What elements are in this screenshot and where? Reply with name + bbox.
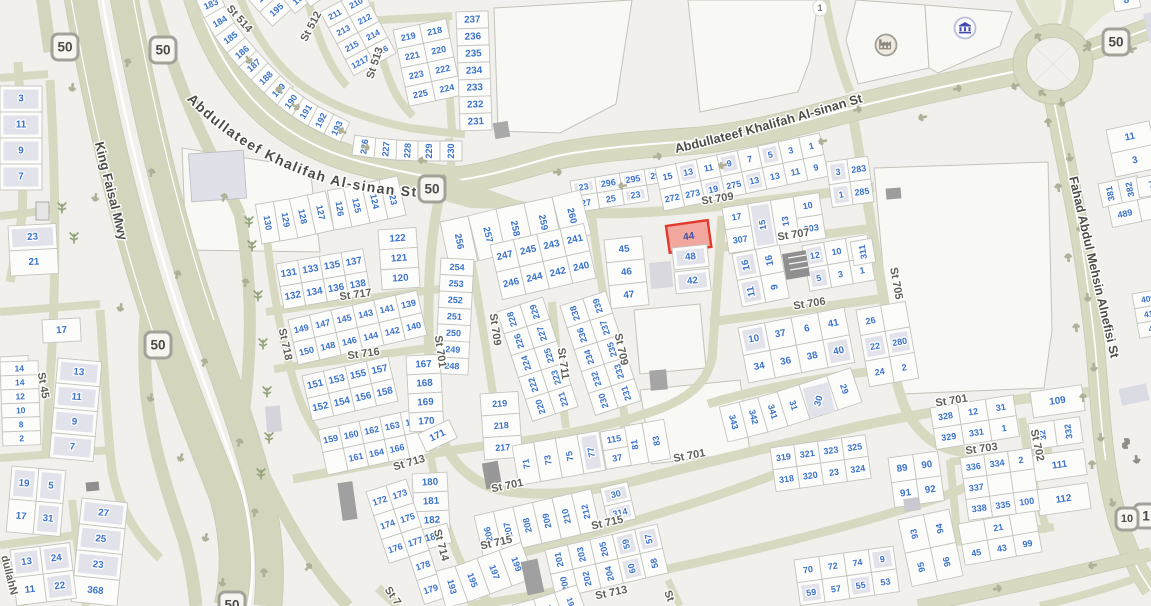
svg-text:83: 83 <box>651 435 663 447</box>
svg-text:23: 23 <box>828 467 839 478</box>
svg-text:22: 22 <box>869 340 881 352</box>
svg-text:25: 25 <box>95 533 108 545</box>
svg-text:15: 15 <box>662 171 674 183</box>
svg-text:182: 182 <box>424 515 441 527</box>
svg-text:321: 321 <box>799 448 815 460</box>
svg-text:13: 13 <box>682 166 694 178</box>
svg-text:233: 233 <box>466 82 483 94</box>
svg-text:338: 338 <box>971 502 987 514</box>
svg-text:11: 11 <box>71 391 83 403</box>
svg-text:92: 92 <box>924 484 937 496</box>
svg-text:26: 26 <box>865 315 877 327</box>
svg-text:112: 112 <box>1055 493 1073 506</box>
svg-text:318: 318 <box>778 473 794 485</box>
svg-text:50: 50 <box>57 40 72 55</box>
svg-text:59: 59 <box>806 587 817 598</box>
svg-text:77: 77 <box>586 447 598 459</box>
svg-text:11: 11 <box>790 166 801 178</box>
svg-text:43: 43 <box>996 542 1008 554</box>
svg-text:332: 332 <box>1062 423 1074 439</box>
svg-text:219: 219 <box>492 398 508 409</box>
svg-text:111: 111 <box>1051 459 1068 472</box>
svg-text:10: 10 <box>1121 513 1133 525</box>
svg-text:234: 234 <box>466 65 483 77</box>
svg-text:8: 8 <box>19 419 24 429</box>
svg-text:109: 109 <box>1049 395 1067 408</box>
svg-text:44: 44 <box>682 231 695 244</box>
svg-text:229: 229 <box>424 143 434 158</box>
svg-text:42: 42 <box>687 275 700 287</box>
svg-text:50: 50 <box>224 598 239 606</box>
svg-text:13: 13 <box>748 175 760 187</box>
svg-text:93: 93 <box>908 528 920 540</box>
svg-text:3: 3 <box>18 94 24 105</box>
svg-text:12: 12 <box>967 406 978 417</box>
svg-text:31: 31 <box>995 402 1006 413</box>
svg-text:50: 50 <box>424 182 439 197</box>
svg-text:250: 250 <box>446 328 462 339</box>
svg-text:13: 13 <box>73 366 85 378</box>
svg-text:23: 23 <box>27 231 39 243</box>
svg-text:368: 368 <box>87 585 105 598</box>
svg-text:53: 53 <box>880 576 891 587</box>
svg-text:48: 48 <box>685 251 698 263</box>
svg-text:251: 251 <box>447 311 463 322</box>
svg-text:409: 409 <box>1140 293 1151 305</box>
svg-text:320: 320 <box>802 470 818 482</box>
svg-text:252: 252 <box>448 295 464 306</box>
svg-text:170: 170 <box>418 416 435 428</box>
svg-text:249: 249 <box>445 344 461 355</box>
svg-text:122: 122 <box>389 233 407 245</box>
svg-text:181: 181 <box>423 496 440 508</box>
svg-text:17: 17 <box>731 211 742 222</box>
svg-text:2: 2 <box>19 433 24 443</box>
svg-text:11: 11 <box>24 584 36 596</box>
svg-text:411: 411 <box>1143 307 1151 319</box>
svg-text:235: 235 <box>465 48 482 60</box>
svg-text:167: 167 <box>415 359 432 371</box>
svg-text:227: 227 <box>380 141 391 157</box>
svg-text:13: 13 <box>21 556 34 568</box>
svg-text:325: 325 <box>847 441 863 453</box>
svg-text:232: 232 <box>467 99 484 111</box>
svg-text:180: 180 <box>422 477 439 489</box>
svg-text:254: 254 <box>449 262 465 273</box>
svg-text:27: 27 <box>98 507 111 519</box>
svg-text:75: 75 <box>564 450 576 462</box>
svg-text:15: 15 <box>757 219 768 230</box>
svg-text:324: 324 <box>850 463 866 475</box>
svg-text:74: 74 <box>852 557 863 568</box>
svg-text:50: 50 <box>150 338 165 353</box>
svg-text:50: 50 <box>155 43 170 58</box>
svg-text:319: 319 <box>775 451 791 463</box>
svg-text:22: 22 <box>54 580 67 592</box>
svg-text:90: 90 <box>921 459 934 471</box>
svg-text:14: 14 <box>14 363 24 373</box>
svg-text:72: 72 <box>827 561 838 572</box>
svg-text:169: 169 <box>417 397 434 409</box>
svg-text:57: 57 <box>830 583 841 594</box>
svg-text:19: 19 <box>18 478 30 490</box>
svg-text:285: 285 <box>854 186 870 198</box>
svg-text:45: 45 <box>618 243 631 255</box>
svg-text:21: 21 <box>28 256 40 268</box>
svg-text:228: 228 <box>402 143 413 158</box>
svg-text:81: 81 <box>629 439 641 451</box>
svg-text:231: 231 <box>467 116 484 128</box>
svg-text:17: 17 <box>15 511 27 523</box>
svg-text:1: 1 <box>1142 509 1150 524</box>
svg-text:37: 37 <box>611 452 623 464</box>
svg-text:13: 13 <box>769 170 781 182</box>
svg-text:12: 12 <box>15 391 25 401</box>
svg-text:323: 323 <box>823 445 839 457</box>
svg-text:121: 121 <box>391 253 409 265</box>
svg-text:11: 11 <box>703 162 714 174</box>
svg-text:17: 17 <box>56 325 68 337</box>
svg-text:10: 10 <box>831 246 843 258</box>
svg-text:24: 24 <box>874 366 886 378</box>
svg-text:10: 10 <box>802 200 813 211</box>
svg-text:217: 217 <box>495 442 511 453</box>
svg-text:47: 47 <box>623 289 636 301</box>
svg-text:337: 337 <box>968 482 984 494</box>
svg-text:99: 99 <box>1022 538 1034 550</box>
svg-text:23: 23 <box>630 189 641 200</box>
svg-text:70: 70 <box>802 564 813 575</box>
svg-text:12: 12 <box>809 250 821 262</box>
svg-text:120: 120 <box>392 272 410 284</box>
svg-text:236: 236 <box>465 31 482 43</box>
svg-text:230: 230 <box>446 143 456 158</box>
svg-text:23: 23 <box>92 559 105 571</box>
svg-text:13: 13 <box>780 216 791 227</box>
svg-text:24: 24 <box>50 552 63 564</box>
svg-text:100: 100 <box>1019 496 1035 508</box>
svg-text:50: 50 <box>1108 35 1123 50</box>
svg-text:91: 91 <box>899 487 912 499</box>
svg-text:7: 7 <box>18 172 24 183</box>
svg-text:46: 46 <box>621 266 634 278</box>
svg-text:283: 283 <box>851 163 867 175</box>
svg-text:73: 73 <box>542 454 554 466</box>
svg-text:1: 1 <box>817 3 822 13</box>
svg-text:96: 96 <box>941 556 953 568</box>
svg-text:237: 237 <box>464 14 481 26</box>
svg-text:9: 9 <box>18 146 24 157</box>
svg-text:10: 10 <box>16 405 26 415</box>
svg-text:89: 89 <box>896 462 909 474</box>
svg-text:31: 31 <box>42 513 54 525</box>
svg-text:71: 71 <box>521 458 533 470</box>
svg-text:218: 218 <box>493 420 509 431</box>
svg-text:335: 335 <box>995 499 1011 511</box>
svg-text:55: 55 <box>855 580 866 591</box>
svg-text:45: 45 <box>970 547 982 559</box>
svg-text:336: 336 <box>965 461 981 473</box>
svg-text:11: 11 <box>16 120 27 131</box>
svg-text:334: 334 <box>989 457 1005 469</box>
svg-text:14: 14 <box>15 377 25 387</box>
svg-text:168: 168 <box>416 378 433 390</box>
svg-text:21: 21 <box>992 522 1004 534</box>
svg-text:25: 25 <box>605 193 616 204</box>
svg-text:95: 95 <box>915 561 927 573</box>
svg-text:253: 253 <box>448 278 464 289</box>
svg-text:94: 94 <box>934 523 946 535</box>
